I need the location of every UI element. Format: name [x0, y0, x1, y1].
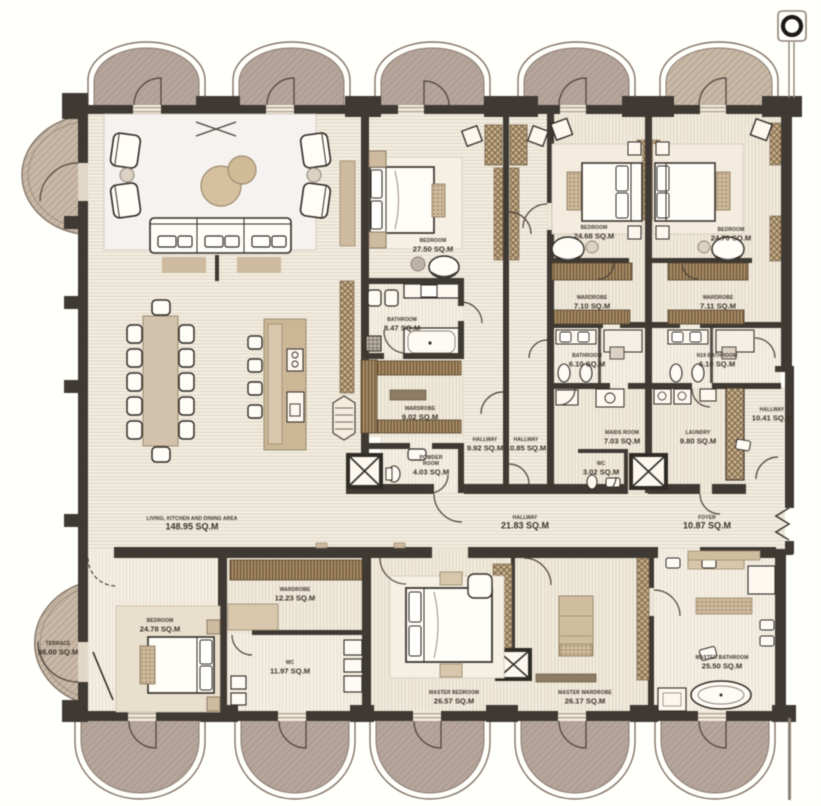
- svg-text:10.87 SQ.M: 10.87 SQ.M: [683, 521, 731, 531]
- svg-text:BEDROOM: BEDROOM: [147, 618, 174, 624]
- svg-text:BATHROOM: BATHROOM: [572, 353, 602, 359]
- svg-text:MASTER WARDROBE: MASTER WARDROBE: [558, 690, 612, 696]
- svg-text:TERRACE: TERRACE: [46, 641, 71, 647]
- svg-text:BEDROOM: BEDROOM: [718, 227, 745, 233]
- svg-text:6.10 SQ.M: 6.10 SQ.M: [569, 360, 605, 369]
- svg-text:BEDROOM: BEDROOM: [420, 238, 447, 244]
- svg-text:WARDROBE: WARDROBE: [577, 295, 608, 301]
- svg-text:9.92 SQ.M: 9.92 SQ.M: [467, 444, 503, 453]
- svg-text:21.83 SQ.M: 21.83 SQ.M: [501, 521, 549, 531]
- svg-text:LAUNDRY: LAUNDRY: [686, 430, 712, 436]
- svg-text:4.03 SQ.M: 4.03 SQ.M: [413, 468, 449, 477]
- svg-text:12.23 SQ.M: 12.23 SQ.M: [275, 594, 316, 603]
- svg-text:25.50 SQ.M: 25.50 SQ.M: [702, 662, 743, 671]
- svg-text:8.47 SQ.M: 8.47 SQ.M: [384, 324, 420, 333]
- svg-text:WC: WC: [286, 660, 295, 666]
- svg-text:MASTER BEDROOM: MASTER BEDROOM: [429, 690, 479, 696]
- svg-text:HALLWAY: HALLWAY: [473, 437, 498, 443]
- svg-text:WARDROBE: WARDROBE: [703, 295, 734, 301]
- svg-text:BATHROOM: BATHROOM: [387, 317, 417, 323]
- svg-text:MAIDS ROOM: MAIDS ROOM: [605, 430, 639, 436]
- svg-text:7.11 SQ.M: 7.11 SQ.M: [700, 302, 736, 311]
- svg-text:MASTER BATHROOM: MASTER BATHROOM: [695, 655, 748, 661]
- svg-text:10.41 SQ.M: 10.41 SQ.M: [752, 414, 793, 423]
- svg-text:24.78 SQ.M: 24.78 SQ.M: [140, 625, 181, 634]
- svg-text:11.97 SQ.M: 11.97 SQ.M: [270, 667, 310, 676]
- svg-text:24.70 SQ.M: 24.70 SQ.M: [711, 234, 752, 243]
- svg-text:24.68 SQ.M: 24.68 SQ.M: [574, 232, 615, 241]
- svg-text:7.03 SQ.M: 7.03 SQ.M: [604, 437, 640, 446]
- svg-text:10.85 SQ.M: 10.85 SQ.M: [506, 444, 547, 453]
- svg-text:26.17 SQ.M: 26.17 SQ.M: [565, 697, 606, 706]
- svg-text:BEDROOM: BEDROOM: [581, 225, 608, 231]
- svg-text:26.57 SQ.M: 26.57 SQ.M: [434, 697, 475, 706]
- svg-text:6.10 SQ.M: 6.10 SQ.M: [699, 360, 735, 369]
- svg-text:27.50 SQ.M: 27.50 SQ.M: [413, 245, 454, 254]
- svg-text:7.10 SQ.M: 7.10 SQ.M: [574, 302, 610, 311]
- svg-text:HALLWAY: HALLWAY: [514, 437, 539, 443]
- svg-text:WARDROBE: WARDROBE: [405, 406, 436, 412]
- svg-text:N19 BATHROOM: N19 BATHROOM: [697, 353, 738, 359]
- svg-text:ROOM: ROOM: [423, 461, 439, 467]
- svg-text:HALLWAY: HALLWAY: [760, 407, 785, 413]
- svg-text:9.80 SQ.M: 9.80 SQ.M: [680, 437, 716, 446]
- svg-text:9.02 SQ.M: 9.02 SQ.M: [402, 413, 438, 422]
- svg-text:98.00 SQ.M: 98.00 SQ.M: [38, 648, 79, 657]
- svg-text:WC: WC: [597, 461, 606, 467]
- svg-text:3.02 SQ.M: 3.02 SQ.M: [583, 468, 619, 477]
- svg-text:WARDROBE: WARDROBE: [280, 587, 311, 593]
- svg-text:148.95 SQ.M: 148.95 SQ.M: [165, 522, 218, 532]
